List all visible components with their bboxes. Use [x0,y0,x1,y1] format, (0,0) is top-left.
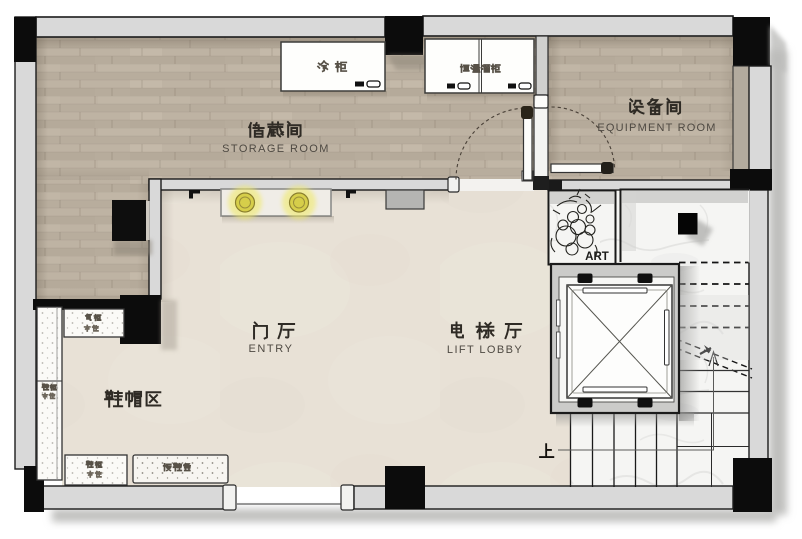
svg-text:ENTRY: ENTRY [248,343,293,355]
svg-text:STORAGE ROOM: STORAGE ROOM [222,143,330,155]
svg-text:ART: ART [585,251,609,263]
svg-text:EQUIPMENT ROOM: EQUIPMENT ROOM [597,122,716,134]
svg-text:LIFT LOBBY: LIFT LOBBY [447,344,523,356]
